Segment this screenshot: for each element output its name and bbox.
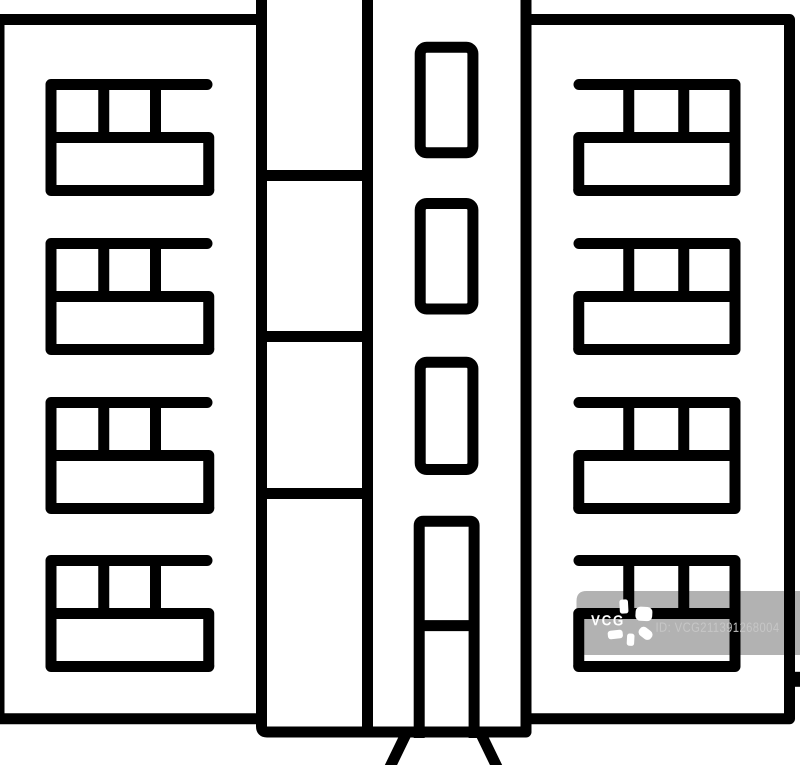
svg-text:VCG: VCG <box>591 613 625 629</box>
svg-text:ID: VCG211391268004: ID: VCG211391268004 <box>655 620 779 635</box>
